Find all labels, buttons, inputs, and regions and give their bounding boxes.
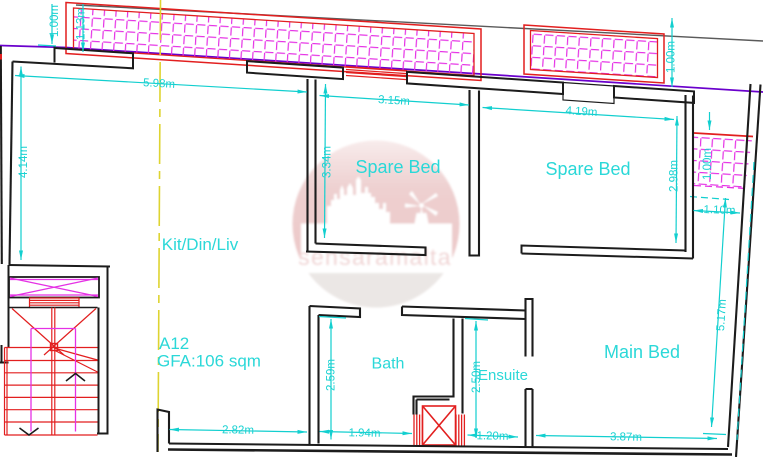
svg-text:Spare Bed: Spare Bed [355,157,440,177]
svg-text:1.13m: 1.13m [76,8,88,40]
svg-text:2.98m: 2.98m [669,160,681,192]
svg-text:A12: A12 [159,334,189,353]
svg-text:2.50m: 2.50m [471,361,483,393]
svg-text:1.00m: 1.00m [702,148,714,180]
svg-text:Spare Bed: Spare Bed [545,159,630,179]
svg-text:4.19m: 4.19m [565,105,598,119]
svg-text:1.10m: 1.10m [703,204,735,217]
svg-text:Main Bed: Main Bed [604,342,680,362]
svg-text:Ensuite: Ensuite [478,367,528,384]
svg-text:Kit/Din/Liv: Kit/Din/Liv [162,235,239,254]
svg-text:1.00m: 1.00m [49,5,61,37]
svg-text:3.15m: 3.15m [378,94,411,108]
svg-text:3.34m: 3.34m [322,146,334,178]
svg-text:1.20m: 1.20m [476,430,508,443]
svg-text:5.98m: 5.98m [143,77,176,91]
svg-text:4.14m: 4.14m [18,146,30,178]
svg-text:2.59m: 2.59m [326,359,338,391]
svg-text:sensaramalta: sensaramalta [298,244,452,270]
svg-text:GFA:106 sqm: GFA:106 sqm [157,352,261,371]
svg-text:Bath: Bath [372,356,405,373]
svg-text:1.00m: 1.00m [666,41,678,73]
svg-text:1.94m: 1.94m [348,427,380,440]
svg-text:5.17m: 5.17m [715,299,729,332]
svg-text:2.82m: 2.82m [222,424,254,437]
svg-text:3.87m: 3.87m [610,431,642,444]
